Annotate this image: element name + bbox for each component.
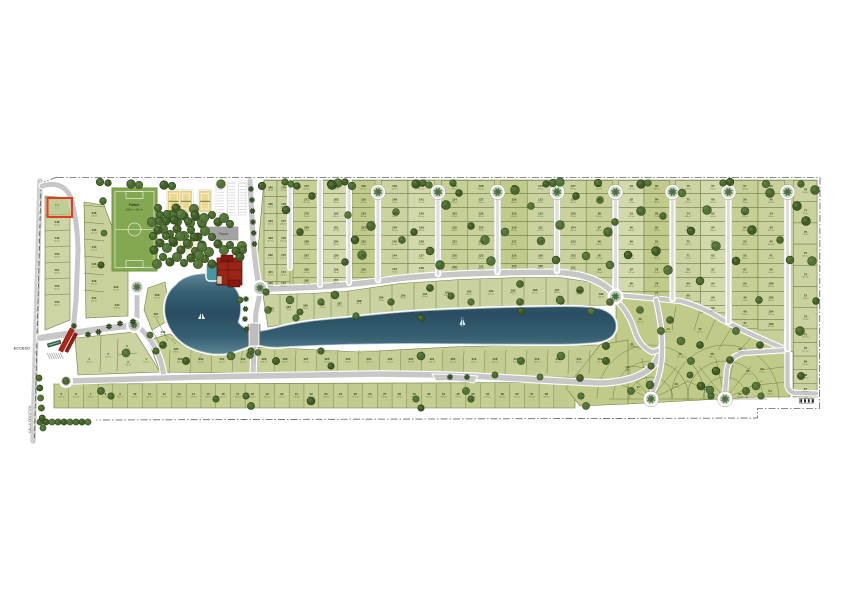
svg-text:690 m2: 690 m2 bbox=[685, 272, 691, 274]
svg-text:621 m2: 621 m2 bbox=[220, 396, 226, 398]
svg-text:685 m2: 685 m2 bbox=[282, 361, 288, 363]
svg-text:863 m2: 863 m2 bbox=[543, 396, 549, 398]
svg-text:822 m2: 822 m2 bbox=[570, 202, 576, 204]
svg-text:545 m2: 545 m2 bbox=[268, 206, 274, 208]
svg-text:577 m2: 577 m2 bbox=[161, 396, 167, 398]
svg-text:544 m2: 544 m2 bbox=[117, 396, 123, 398]
svg-text:561 m2: 561 m2 bbox=[361, 230, 367, 232]
svg-text:681 m2: 681 m2 bbox=[538, 202, 544, 204]
svg-text:688 m2: 688 m2 bbox=[478, 244, 484, 246]
svg-text:697 m2: 697 m2 bbox=[654, 244, 660, 246]
svg-text:517 m2: 517 m2 bbox=[418, 202, 424, 204]
svg-text:720 m2: 720 m2 bbox=[352, 396, 358, 398]
svg-text:566 m2: 566 m2 bbox=[147, 396, 153, 398]
svg-text:658 m2: 658 m2 bbox=[452, 202, 458, 204]
svg-text:588 m2: 588 m2 bbox=[176, 396, 182, 398]
svg-text:579 m2: 579 m2 bbox=[710, 188, 716, 190]
svg-text:686 m2: 686 m2 bbox=[54, 304, 60, 306]
svg-text:CALLE ONCATIVO: CALLE ONCATIVO bbox=[28, 405, 32, 433]
svg-text:719 m2: 719 m2 bbox=[105, 356, 111, 358]
svg-text:689 m2: 689 m2 bbox=[702, 389, 708, 391]
svg-text:894 m2: 894 m2 bbox=[333, 216, 339, 218]
svg-text:634 m2: 634 m2 bbox=[219, 361, 225, 363]
svg-text:535 m2: 535 m2 bbox=[742, 216, 748, 218]
svg-text:557 m2: 557 m2 bbox=[803, 364, 809, 366]
svg-text:528 m2: 528 m2 bbox=[803, 234, 809, 236]
svg-text:716 m2: 716 m2 bbox=[304, 244, 310, 246]
svg-text:827 m2: 827 m2 bbox=[304, 202, 310, 204]
svg-text:738 m2: 738 m2 bbox=[125, 364, 131, 366]
svg-text:549 m2: 549 m2 bbox=[654, 295, 660, 297]
svg-text:750 m2: 750 m2 bbox=[113, 289, 119, 291]
svg-text:875 m2: 875 m2 bbox=[803, 255, 809, 257]
svg-text:540 m2: 540 m2 bbox=[511, 202, 517, 204]
svg-text:757 m2: 757 m2 bbox=[710, 272, 716, 274]
svg-text:752 m2: 752 m2 bbox=[737, 396, 743, 398]
svg-text:599 m2: 599 m2 bbox=[191, 396, 197, 398]
svg-text:778 m2: 778 m2 bbox=[596, 272, 602, 274]
svg-text:887 m2: 887 m2 bbox=[361, 258, 367, 260]
svg-text:709 m2: 709 m2 bbox=[338, 396, 344, 398]
svg-text:555 m2: 555 m2 bbox=[132, 396, 138, 398]
svg-text:843 m2: 843 m2 bbox=[418, 230, 424, 232]
svg-text:642 m2: 642 m2 bbox=[304, 272, 310, 274]
svg-text:531 m2: 531 m2 bbox=[333, 202, 339, 204]
svg-text:898 m2: 898 m2 bbox=[742, 230, 748, 232]
svg-text:757 m2: 757 m2 bbox=[124, 348, 130, 350]
svg-text:804 m2: 804 m2 bbox=[422, 296, 428, 298]
svg-text:600 m2: 600 m2 bbox=[177, 361, 183, 363]
svg-text:841 m2: 841 m2 bbox=[514, 396, 520, 398]
svg-text:570 m2: 570 m2 bbox=[538, 244, 544, 246]
svg-text:718 m2: 718 m2 bbox=[538, 188, 544, 190]
svg-text:626 m2: 626 m2 bbox=[673, 386, 679, 388]
svg-text:500 m2: 500 m2 bbox=[637, 321, 643, 323]
svg-text:651 m2: 651 m2 bbox=[478, 258, 484, 260]
svg-text:882 m2: 882 m2 bbox=[554, 292, 560, 294]
svg-text:533 m2: 533 m2 bbox=[538, 258, 544, 260]
svg-text:746 m2: 746 m2 bbox=[333, 272, 339, 274]
svg-text:575 m2: 575 m2 bbox=[281, 257, 287, 259]
svg-text:572 m2: 572 m2 bbox=[742, 202, 748, 204]
svg-text:776 m2: 776 m2 bbox=[392, 202, 398, 204]
svg-text:732 m2: 732 m2 bbox=[418, 270, 424, 272]
svg-text:801 m2: 801 m2 bbox=[685, 230, 691, 232]
svg-text:815 m2: 815 m2 bbox=[596, 258, 602, 260]
svg-text:753 m2: 753 m2 bbox=[396, 396, 402, 398]
svg-text:861 m2: 861 m2 bbox=[742, 244, 748, 246]
svg-text:574 m2: 574 m2 bbox=[91, 249, 97, 251]
svg-text:668 m2: 668 m2 bbox=[709, 356, 715, 358]
svg-text:654 m2: 654 m2 bbox=[264, 396, 270, 398]
svg-text:616 m2: 616 m2 bbox=[685, 298, 691, 300]
svg-text:601 m2: 601 m2 bbox=[91, 266, 97, 268]
svg-text:621 m2: 621 m2 bbox=[452, 216, 458, 218]
svg-text:817 m2: 817 m2 bbox=[444, 295, 450, 297]
svg-text:940 m2: 940 m2 bbox=[597, 361, 603, 363]
svg-text:679 m2: 679 m2 bbox=[304, 258, 310, 260]
svg-text:533 m2: 533 m2 bbox=[102, 396, 108, 398]
svg-text:501 m2: 501 m2 bbox=[281, 285, 287, 287]
svg-text:593 m2: 593 m2 bbox=[628, 244, 634, 246]
svg-text:836 m2: 836 m2 bbox=[478, 188, 484, 190]
svg-text:667 m2: 667 m2 bbox=[628, 216, 634, 218]
svg-text:797 m2: 797 m2 bbox=[455, 396, 461, 398]
svg-text:880 m2: 880 m2 bbox=[418, 216, 424, 218]
svg-text:711 m2: 711 m2 bbox=[570, 244, 576, 246]
svg-text:753 m2: 753 m2 bbox=[304, 230, 310, 232]
svg-text:936 m2: 936 m2 bbox=[114, 307, 120, 309]
svg-text:607 m2: 607 m2 bbox=[538, 230, 544, 232]
svg-text:577 m2: 577 m2 bbox=[511, 188, 517, 190]
svg-text:895 m2: 895 m2 bbox=[576, 293, 582, 295]
svg-text:524 m2: 524 m2 bbox=[361, 244, 367, 246]
svg-text:698 m2: 698 m2 bbox=[323, 396, 329, 398]
svg-text:614 m2: 614 m2 bbox=[478, 269, 484, 271]
svg-text:511 m2: 511 m2 bbox=[73, 396, 79, 398]
svg-text:787 m2: 787 m2 bbox=[742, 272, 748, 274]
svg-text:889 m2: 889 m2 bbox=[534, 361, 540, 363]
svg-text:605 m2: 605 m2 bbox=[677, 356, 683, 358]
svg-text:623 m2: 623 m2 bbox=[654, 272, 660, 274]
svg-text:739 m2: 739 m2 bbox=[320, 307, 326, 309]
svg-text:769 m2: 769 m2 bbox=[803, 298, 809, 300]
svg-text:821 m2: 821 m2 bbox=[450, 361, 456, 363]
svg-text:Playon: Playon bbox=[219, 232, 229, 236]
svg-text:600 m2: 600 m2 bbox=[596, 188, 602, 190]
svg-text:769 m2: 769 m2 bbox=[418, 258, 424, 260]
svg-text:602 m2: 602 m2 bbox=[768, 188, 774, 190]
svg-text:665 m2: 665 m2 bbox=[279, 396, 285, 398]
svg-text:630 m2: 630 m2 bbox=[628, 230, 634, 232]
svg-text:528 m2: 528 m2 bbox=[768, 216, 774, 218]
svg-text:510 m2: 510 m2 bbox=[452, 258, 458, 260]
svg-text:770 m2: 770 m2 bbox=[387, 361, 393, 363]
svg-text:644 m2: 644 m2 bbox=[538, 216, 544, 218]
svg-text:598 m2: 598 m2 bbox=[361, 216, 367, 218]
svg-text:731 m2: 731 m2 bbox=[367, 396, 373, 398]
svg-text:500 m2: 500 m2 bbox=[58, 396, 64, 398]
svg-text:843 m2: 843 m2 bbox=[488, 293, 494, 295]
svg-text:649 m2: 649 m2 bbox=[281, 223, 287, 225]
svg-text:695 m2: 695 m2 bbox=[452, 188, 458, 190]
svg-text:568 m2: 568 m2 bbox=[333, 188, 339, 190]
svg-text:771 m2: 771 m2 bbox=[654, 216, 660, 218]
svg-text:ACCESO: ACCESO bbox=[14, 347, 31, 351]
svg-text:778 m2: 778 m2 bbox=[378, 300, 384, 302]
svg-text:824 m2: 824 m2 bbox=[742, 258, 748, 260]
svg-text:556 m2: 556 m2 bbox=[628, 258, 634, 260]
svg-text:817 m2: 817 m2 bbox=[768, 258, 774, 260]
svg-text:700 m2: 700 m2 bbox=[269, 311, 275, 313]
svg-text:813 m2: 813 m2 bbox=[392, 188, 398, 190]
svg-text:872 m2: 872 m2 bbox=[513, 361, 519, 363]
svg-text:906 m2: 906 m2 bbox=[555, 361, 561, 363]
svg-text:687 m2: 687 m2 bbox=[308, 396, 314, 398]
svg-text:851 m2: 851 m2 bbox=[803, 391, 809, 393]
svg-text:723 m2: 723 m2 bbox=[153, 316, 159, 318]
svg-text:891 m2: 891 m2 bbox=[768, 230, 774, 232]
svg-text:908 m2: 908 m2 bbox=[598, 296, 604, 298]
svg-text:875 m2: 875 m2 bbox=[685, 202, 691, 204]
svg-text:542 m2: 542 m2 bbox=[710, 202, 716, 204]
svg-text:741 m2: 741 m2 bbox=[628, 188, 634, 190]
svg-text:565 m2: 565 m2 bbox=[768, 202, 774, 204]
svg-text:727 m2: 727 m2 bbox=[685, 258, 691, 260]
svg-text:896 m2: 896 m2 bbox=[538, 268, 544, 270]
svg-text:562 m2: 562 m2 bbox=[54, 240, 60, 242]
svg-text:859 m2: 859 m2 bbox=[570, 188, 576, 190]
svg-text:639 m2: 639 m2 bbox=[742, 325, 748, 327]
svg-text:612 m2: 612 m2 bbox=[281, 240, 287, 242]
svg-text:632 m2: 632 m2 bbox=[235, 396, 241, 398]
svg-text:531 m2: 531 m2 bbox=[54, 224, 60, 226]
svg-text:773 m2: 773 m2 bbox=[759, 371, 765, 373]
svg-text:830 m2: 830 m2 bbox=[499, 396, 505, 398]
svg-text:739 m2: 739 m2 bbox=[392, 216, 398, 218]
svg-text:709 m2: 709 m2 bbox=[333, 282, 339, 284]
svg-text:882 m2: 882 m2 bbox=[628, 286, 634, 288]
svg-text:521 m2: 521 m2 bbox=[629, 346, 635, 348]
svg-text:864 m2: 864 m2 bbox=[304, 188, 310, 190]
svg-text:856 m2: 856 m2 bbox=[510, 293, 516, 295]
svg-text:610 m2: 610 m2 bbox=[205, 396, 211, 398]
svg-text:783 m2: 783 m2 bbox=[333, 258, 339, 260]
svg-text:702 m2: 702 m2 bbox=[392, 230, 398, 232]
svg-text:503 m2: 503 m2 bbox=[511, 216, 517, 218]
svg-text:776 m2: 776 m2 bbox=[143, 361, 149, 363]
svg-text:831 m2: 831 m2 bbox=[710, 244, 716, 246]
svg-text:582 m2: 582 m2 bbox=[768, 286, 774, 288]
svg-text:547 m2: 547 m2 bbox=[91, 232, 97, 234]
svg-text:672 m2: 672 m2 bbox=[361, 188, 367, 190]
svg-text:508 m2: 508 m2 bbox=[268, 223, 274, 225]
svg-text:868 m2: 868 m2 bbox=[710, 230, 716, 232]
svg-text:700 m2: 700 m2 bbox=[154, 297, 160, 299]
svg-text:637 m2: 637 m2 bbox=[570, 270, 576, 272]
svg-text:873 m2: 873 m2 bbox=[452, 269, 458, 271]
svg-text:663 m2: 663 m2 bbox=[803, 337, 809, 339]
svg-text:852 m2: 852 m2 bbox=[529, 396, 535, 398]
svg-text:646 m2: 646 m2 bbox=[710, 310, 716, 312]
svg-text:830 m2: 830 m2 bbox=[466, 294, 472, 296]
svg-text:609 m2: 609 m2 bbox=[742, 188, 748, 190]
svg-text:794 m2: 794 m2 bbox=[710, 258, 716, 260]
svg-text:871 m2: 871 m2 bbox=[768, 326, 774, 328]
svg-text:869 m2: 869 m2 bbox=[532, 292, 538, 294]
svg-text:806 m2: 806 m2 bbox=[418, 244, 424, 246]
svg-text:653 m2: 653 m2 bbox=[685, 286, 691, 288]
svg-text:547 m2: 547 m2 bbox=[452, 244, 458, 246]
svg-text:804 m2: 804 m2 bbox=[429, 361, 435, 363]
svg-text:791 m2: 791 m2 bbox=[400, 298, 406, 300]
svg-text:786 m2: 786 m2 bbox=[441, 396, 447, 398]
svg-text:794 m2: 794 m2 bbox=[767, 393, 773, 395]
svg-text:610 m2: 610 m2 bbox=[803, 350, 809, 352]
svg-text:660 m2: 660 m2 bbox=[654, 258, 660, 260]
svg-text:822 m2: 822 m2 bbox=[803, 277, 809, 279]
svg-text:866 m2: 866 m2 bbox=[511, 230, 517, 232]
svg-text:702 m2: 702 m2 bbox=[303, 361, 309, 363]
svg-text:584 m2: 584 m2 bbox=[665, 331, 671, 333]
svg-text:683 m2: 683 m2 bbox=[710, 300, 716, 302]
svg-text:753 m2: 753 m2 bbox=[366, 361, 372, 363]
svg-text:668 m2: 668 m2 bbox=[261, 361, 267, 363]
svg-text:635 m2: 635 m2 bbox=[361, 202, 367, 204]
svg-text:520 m2: 520 m2 bbox=[91, 215, 97, 217]
svg-text:Futbol: Futbol bbox=[129, 203, 139, 207]
svg-text:628 m2: 628 m2 bbox=[392, 258, 398, 260]
svg-text:593 m2: 593 m2 bbox=[54, 256, 60, 258]
svg-text:889 m2: 889 m2 bbox=[596, 230, 602, 232]
svg-text:676 m2: 676 m2 bbox=[742, 314, 748, 316]
svg-text:871 m2: 871 m2 bbox=[268, 240, 274, 242]
svg-text:643 m2: 643 m2 bbox=[249, 396, 255, 398]
svg-text:748 m2: 748 m2 bbox=[570, 230, 576, 232]
svg-text:655 m2: 655 m2 bbox=[54, 288, 60, 290]
svg-text:651 m2: 651 m2 bbox=[240, 361, 246, 363]
svg-text:519 m2: 519 m2 bbox=[628, 272, 634, 274]
svg-text:628 m2: 628 m2 bbox=[91, 283, 97, 285]
svg-text:820 m2: 820 m2 bbox=[333, 244, 339, 246]
svg-text:854 m2: 854 m2 bbox=[768, 244, 774, 246]
svg-text:720 m2: 720 m2 bbox=[710, 286, 716, 288]
svg-text:617 m2: 617 m2 bbox=[198, 361, 204, 363]
svg-text:674 m2: 674 m2 bbox=[570, 258, 576, 260]
svg-text:785 m2: 785 m2 bbox=[570, 216, 576, 218]
svg-text:769 m2: 769 m2 bbox=[173, 351, 179, 353]
svg-text:799 m2: 799 m2 bbox=[478, 202, 484, 204]
svg-text:764 m2: 764 m2 bbox=[411, 396, 417, 398]
svg-text:591 m2: 591 m2 bbox=[392, 271, 398, 273]
svg-text:808 m2: 808 m2 bbox=[654, 202, 660, 204]
svg-text:512 m2: 512 m2 bbox=[685, 188, 691, 190]
svg-text:719 m2: 719 m2 bbox=[324, 361, 330, 363]
svg-text:834 m2: 834 m2 bbox=[268, 257, 274, 259]
svg-text:676 m2: 676 m2 bbox=[294, 396, 300, 398]
svg-text:624 m2: 624 m2 bbox=[54, 272, 60, 274]
svg-text:850 m2: 850 m2 bbox=[361, 272, 367, 274]
svg-text:542 m2: 542 m2 bbox=[625, 369, 631, 371]
svg-text:734 m2: 734 m2 bbox=[654, 230, 660, 232]
svg-text:105m x 60 m: 105m x 60 m bbox=[125, 208, 143, 212]
svg-text:713 m2: 713 m2 bbox=[286, 309, 292, 311]
svg-text:838 m2: 838 m2 bbox=[685, 216, 691, 218]
svg-text:581 m2: 581 m2 bbox=[803, 213, 809, 215]
svg-text:634 m2: 634 m2 bbox=[803, 192, 809, 194]
svg-text:586 m2: 586 m2 bbox=[654, 286, 660, 288]
svg-text:522 m2: 522 m2 bbox=[88, 396, 94, 398]
svg-text:710 m2: 710 m2 bbox=[737, 351, 743, 353]
svg-text:855 m2: 855 m2 bbox=[492, 361, 498, 363]
svg-text:790 m2: 790 m2 bbox=[304, 216, 310, 218]
svg-text:829 m2: 829 m2 bbox=[511, 244, 517, 246]
svg-text:538 m2: 538 m2 bbox=[281, 274, 287, 276]
svg-text:665 m2: 665 m2 bbox=[392, 244, 398, 246]
svg-text:736 m2: 736 m2 bbox=[345, 361, 351, 363]
svg-text:508 m2: 508 m2 bbox=[768, 314, 774, 316]
svg-text:764 m2: 764 m2 bbox=[685, 244, 691, 246]
svg-text:563 m2: 563 m2 bbox=[596, 202, 602, 204]
svg-text:700 m2: 700 m2 bbox=[86, 361, 92, 363]
svg-text:780 m2: 780 m2 bbox=[768, 272, 774, 274]
svg-text:526 m2: 526 m2 bbox=[596, 216, 602, 218]
svg-text:505 m2: 505 m2 bbox=[710, 216, 716, 218]
svg-text:554 m2: 554 m2 bbox=[418, 188, 424, 190]
svg-text:775 m2: 775 m2 bbox=[426, 396, 432, 398]
svg-text:857 m2: 857 m2 bbox=[333, 230, 339, 232]
svg-text:750 m2: 750 m2 bbox=[742, 286, 748, 288]
svg-text:605 m2: 605 m2 bbox=[304, 283, 310, 285]
svg-text:752 m2: 752 m2 bbox=[337, 306, 343, 308]
svg-text:808 m2: 808 m2 bbox=[470, 396, 476, 398]
svg-text:797 m2: 797 m2 bbox=[268, 274, 274, 276]
svg-text:731 m2: 731 m2 bbox=[745, 373, 751, 375]
svg-text:819 m2: 819 m2 bbox=[485, 396, 491, 398]
svg-text:760 m2: 760 m2 bbox=[268, 285, 274, 287]
svg-text:742 m2: 742 m2 bbox=[382, 396, 388, 398]
svg-text:686 m2: 686 m2 bbox=[281, 206, 287, 208]
svg-text:755 m2: 755 m2 bbox=[511, 268, 517, 270]
svg-text:852 m2: 852 m2 bbox=[596, 244, 602, 246]
svg-text:923 m2: 923 m2 bbox=[576, 361, 582, 363]
svg-text:584 m2: 584 m2 bbox=[452, 230, 458, 232]
svg-text:765 m2: 765 m2 bbox=[356, 303, 362, 305]
svg-text:787 m2: 787 m2 bbox=[408, 361, 414, 363]
svg-text:845 m2: 845 m2 bbox=[654, 188, 660, 190]
svg-text:545 m2: 545 m2 bbox=[768, 300, 774, 302]
svg-text:647 m2: 647 m2 bbox=[697, 331, 703, 333]
svg-text:563 m2: 563 m2 bbox=[635, 389, 641, 391]
svg-text:725 m2: 725 m2 bbox=[478, 230, 484, 232]
svg-text:582 m2: 582 m2 bbox=[268, 190, 274, 192]
svg-text:762 m2: 762 m2 bbox=[478, 216, 484, 218]
svg-text:713 m2: 713 m2 bbox=[742, 300, 748, 302]
svg-text:838 m2: 838 m2 bbox=[471, 361, 477, 363]
svg-text:726 m2: 726 m2 bbox=[303, 308, 309, 310]
svg-text:504 m2: 504 m2 bbox=[803, 378, 809, 380]
svg-text:704 m2: 704 m2 bbox=[628, 202, 634, 204]
svg-text:655 m2: 655 m2 bbox=[91, 300, 97, 302]
svg-text:746 m2: 746 m2 bbox=[160, 334, 166, 336]
svg-text:723 m2: 723 m2 bbox=[281, 190, 287, 192]
svg-text:716 m2: 716 m2 bbox=[803, 319, 809, 321]
svg-text:792 m2: 792 m2 bbox=[511, 258, 517, 260]
